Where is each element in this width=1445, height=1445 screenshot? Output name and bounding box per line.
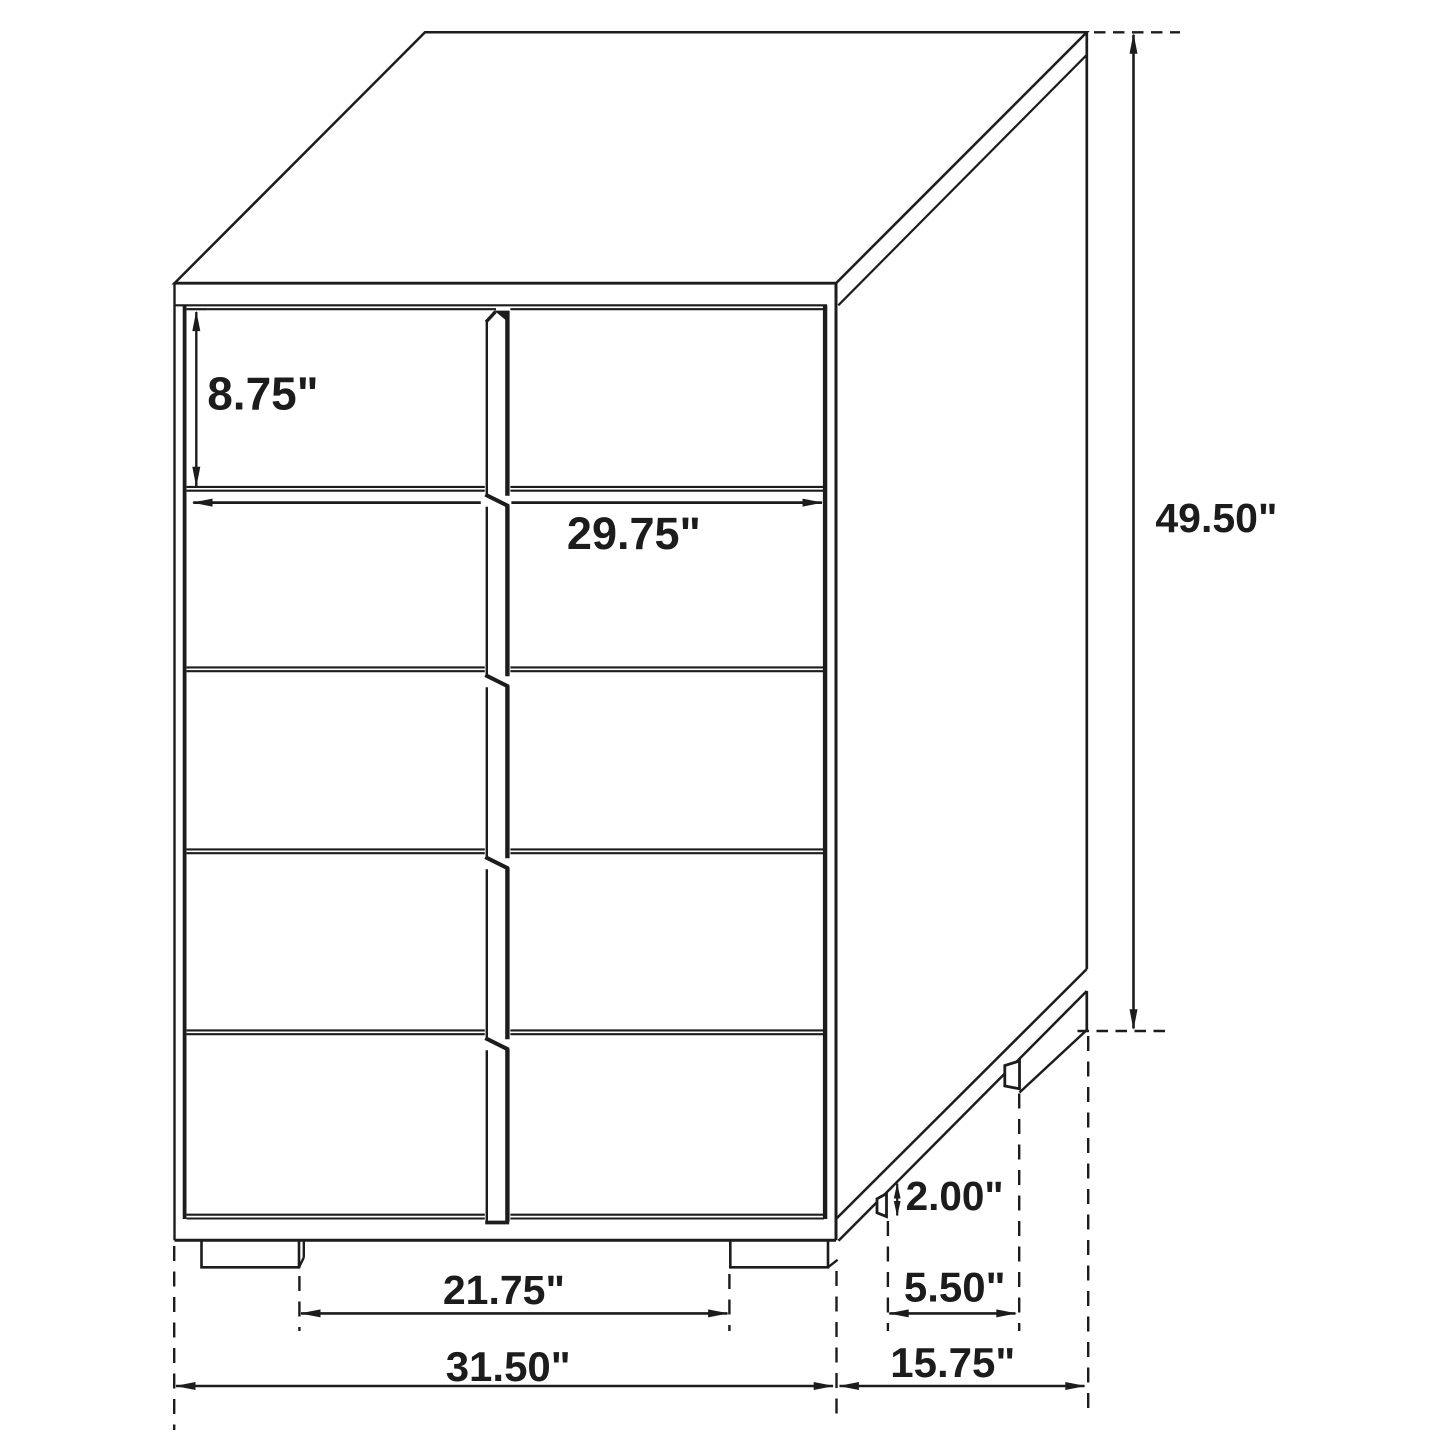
svg-text:31.50": 31.50" <box>446 1343 571 1390</box>
svg-text:8.75": 8.75" <box>207 367 318 419</box>
svg-text:15.75": 15.75" <box>890 1339 1015 1386</box>
svg-text:29.75": 29.75" <box>567 508 701 559</box>
svg-text:5.50": 5.50" <box>904 1263 1006 1310</box>
svg-text:21.75": 21.75" <box>443 1267 565 1313</box>
svg-text:49.50": 49.50" <box>1155 495 1277 541</box>
svg-text:2.00": 2.00" <box>906 1173 1004 1219</box>
